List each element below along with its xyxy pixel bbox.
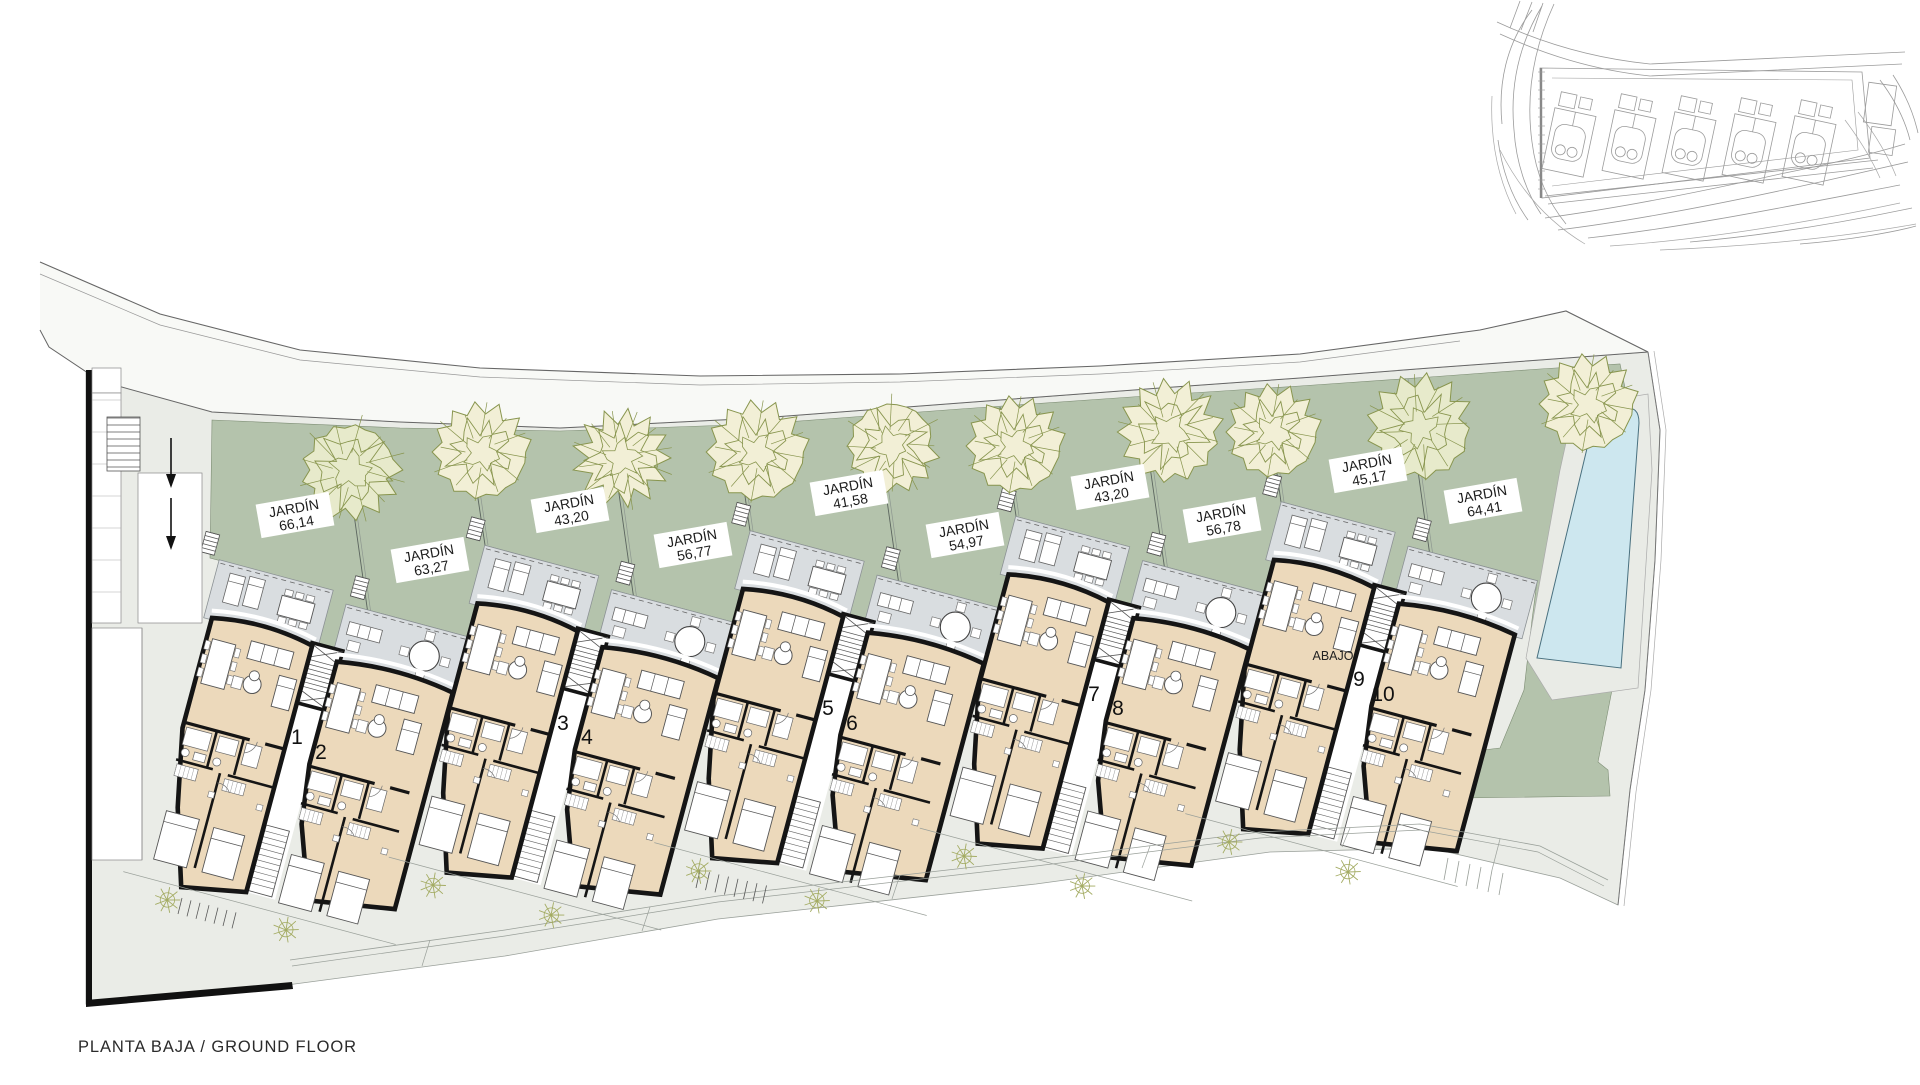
svg-text:ABAJO: ABAJO — [1313, 649, 1354, 663]
svg-text:10: 10 — [1371, 683, 1394, 706]
svg-text:6: 6 — [846, 712, 858, 735]
svg-text:PLANTA BAJA / GROUND FLOOR: PLANTA BAJA / GROUND FLOOR — [78, 1038, 357, 1056]
svg-text:3: 3 — [557, 712, 569, 735]
svg-text:4: 4 — [581, 726, 593, 749]
svg-text:5: 5 — [822, 697, 834, 720]
svg-text:8: 8 — [1112, 697, 1124, 720]
svg-text:7: 7 — [1088, 683, 1100, 706]
svg-text:1: 1 — [291, 726, 303, 749]
svg-text:9: 9 — [1353, 668, 1365, 691]
svg-text:2: 2 — [315, 741, 327, 764]
